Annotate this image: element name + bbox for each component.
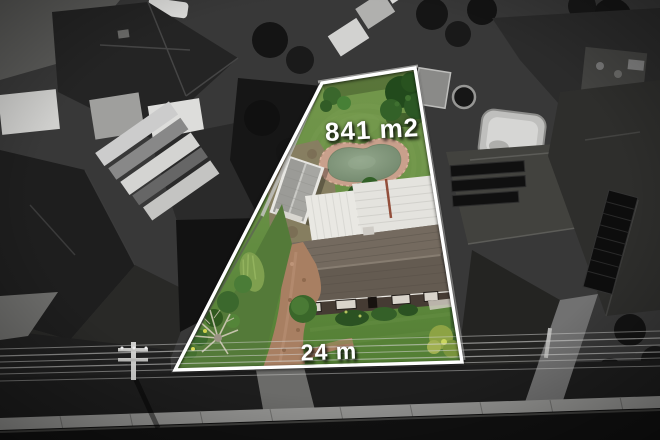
aerial-photo: 841 m2 24 m xyxy=(0,0,660,440)
area-label: 841 m2 xyxy=(324,112,420,148)
vignette xyxy=(0,0,660,440)
frontage-label: 24 m xyxy=(300,338,357,367)
scene-svg xyxy=(0,0,660,440)
